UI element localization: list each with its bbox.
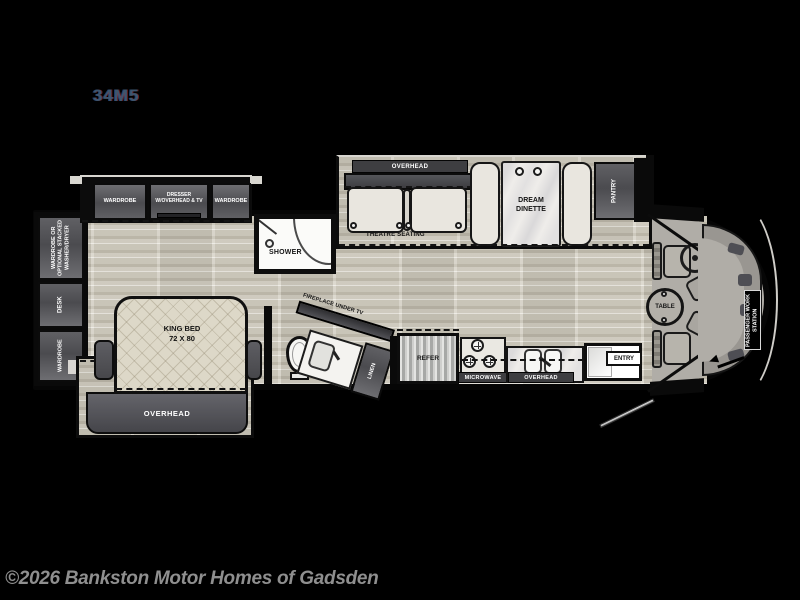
bed-size-line2: 72 X 80 [140,334,224,344]
bedroom-dresser: DRESSER W/OVERHEAD & TV [149,183,209,220]
slide-tab [70,176,82,184]
table-cup-icon [661,317,667,323]
bedroom-wardrobe-right: WARDROBE [211,183,251,220]
bed-foot-dash [116,388,246,390]
bedroom-overhead-cabinet: OVERHEAD [86,392,248,434]
entry-label: ENTRY [606,351,642,366]
dream-dinette-label: DREAM DINETTE [505,193,557,217]
model-number: 34M5 [93,86,140,106]
front-partition-wall [646,155,654,219]
dinette-bench-left [470,162,500,246]
living-overhead-cabinet: OVERHEAD [352,160,468,173]
rear-desk: DESK [38,282,84,328]
nightstand [246,340,262,380]
king-bed [114,296,248,394]
slide-tab [250,176,262,184]
passenger-seat [663,332,691,365]
bed-size-line1: KING BED [140,324,224,334]
copyright-text: ©2026 Bankston Motor Homes of Gadsden [5,568,378,590]
table-cup-icon [661,291,667,297]
slide-tab [68,360,76,374]
cupholder-icon [405,222,412,229]
kitchen-sink-icon [524,349,542,374]
driver-seat-back [652,242,662,280]
dinette-bench-right [562,162,592,246]
nightstand [94,340,114,380]
passenger-seat-back [652,330,662,368]
living-slide-dash [339,244,649,246]
burner-icon [471,339,484,352]
floorplan-canvas: 34M5 WARDROBE OR OPTIONAL STACKED WASHER… [0,0,800,600]
tv-icon [157,213,201,218]
microwave-label-band: MICROWAVE [458,372,508,383]
pantry-cabinet: PANTRY [594,162,636,220]
cupholder-icon [396,222,403,229]
shower-room: SHOWER [254,214,336,274]
theatre-slide-dash [345,186,473,188]
burner-icon [463,355,476,368]
shower-door-arc-icon [293,214,336,265]
cupholder-icon [455,222,462,229]
theatre-seating-label: THEATRE SEATING [366,232,425,238]
bath-wall [264,306,272,384]
bedroom-wardrobe-left: WARDROBE [93,183,147,220]
shower-label: SHOWER [269,249,302,256]
shower-seat-line [255,217,277,235]
entry-grab-rail-icon [599,398,655,428]
king-bed-label: KING BED 72 X 80 [140,324,224,344]
cupholder-icon [515,167,524,176]
front-lower-wedge [650,378,704,396]
rear-washer-dryer-cabinet: WARDROBE OR OPTIONAL STACKED WASHER/DRYE… [38,216,84,280]
dash-module [738,274,752,286]
bedroom-slide-dash [82,220,250,222]
dresser-label: DRESSER W/OVERHEAD & TV [151,192,207,204]
shower-head-icon [265,239,274,248]
kitchen-overhead-band: OVERHEAD [508,372,574,383]
burner-icon [483,355,496,368]
cupholder-icon [350,222,357,229]
cupholder-icon [533,167,542,176]
passenger-workstation-label: PASSENGER WORK STATION [744,290,761,350]
counter-overhead-dash [462,359,584,361]
kitchen-overhead-dash [397,329,459,331]
refrigerator: REFER [397,333,459,384]
